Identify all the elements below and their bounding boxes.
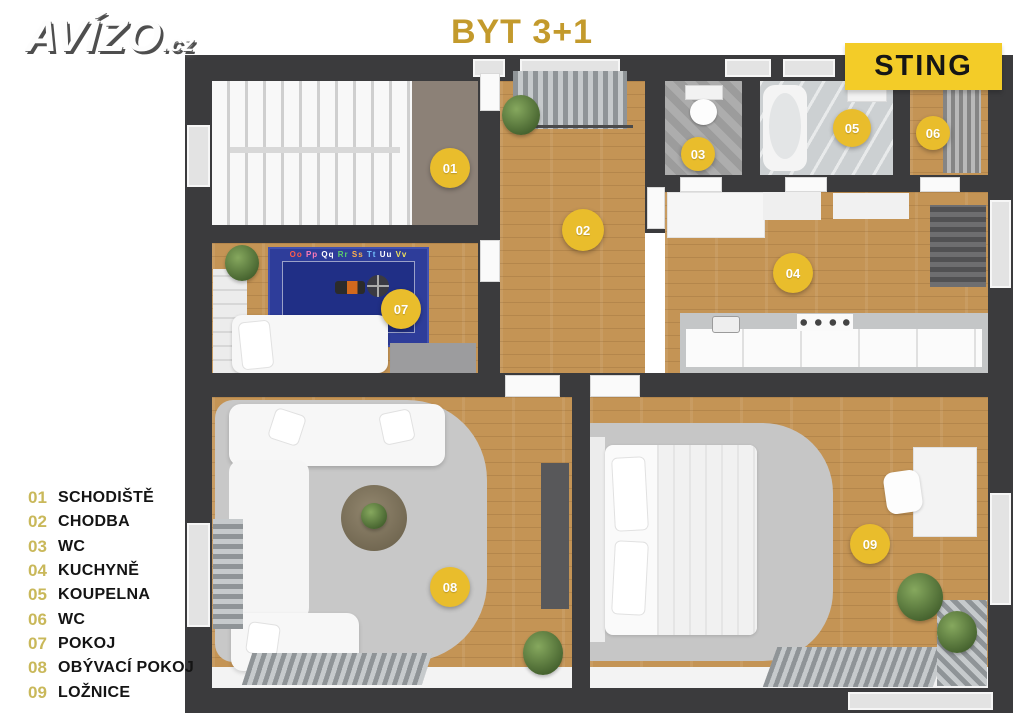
legend-item-08: 08OBÝVACÍ POKOJ <box>28 656 194 680</box>
sofa-pillow <box>245 621 281 657</box>
sting-badge: STING <box>845 43 1002 90</box>
window-top-wc <box>725 59 771 77</box>
toy-steering-wheel <box>367 275 389 297</box>
legend-number: 08 <box>28 658 58 678</box>
window-right-bedroom <box>990 493 1011 605</box>
avizo-logo-suffix: .cz <box>162 31 196 56</box>
child-bed-pillow <box>238 319 275 370</box>
kitchen-sink <box>712 316 740 333</box>
child-dresser <box>390 343 476 373</box>
legend-label: SCHODIŠTĚ <box>58 489 154 507</box>
bathtub-basin <box>769 93 801 159</box>
room-legend: 01SCHODIŠTĚ02CHODBA03WC04KUCHYNĚ05KOUPEL… <box>28 486 194 705</box>
room-marker-06: 06 <box>916 116 950 150</box>
room-marker-03: 03 <box>681 137 715 171</box>
avizo-logo[interactable]: AVÍZO.cz <box>24 12 197 62</box>
legend-label: KUCHYNĚ <box>58 562 139 580</box>
kitchen-upper-cabinet <box>763 192 821 220</box>
plant-living <box>523 631 563 675</box>
kitchen-stove <box>797 314 853 331</box>
wall-living-bedroom <box>572 373 590 688</box>
bedroom-desk <box>913 447 977 537</box>
plant-bedroom <box>897 573 943 621</box>
toy-car <box>335 281 365 294</box>
legend-label: LOŽNICE <box>58 684 130 702</box>
legend-label: KOUPELNA <box>58 586 150 604</box>
plant-child-room <box>225 245 259 281</box>
legend-label: WC <box>58 611 85 629</box>
room-marker-04: 04 <box>773 253 813 293</box>
sting-badge-label: STING <box>874 50 973 83</box>
room-marker-08: 08 <box>430 567 470 607</box>
plant-bedroom <box>937 611 977 653</box>
legend-number: 06 <box>28 610 58 630</box>
legend-number: 05 <box>28 585 58 605</box>
legend-item-01: 01SCHODIŠTĚ <box>28 486 194 510</box>
room-marker-05: 05 <box>833 109 871 147</box>
kitchen-counter-front <box>686 329 982 367</box>
legend-number: 03 <box>28 537 58 557</box>
room-marker-07: 07 <box>381 289 421 329</box>
door-wc2 <box>920 177 960 192</box>
coffee-table-plant <box>361 503 387 529</box>
legend-number: 02 <box>28 512 58 532</box>
plant-hallway <box>502 95 540 135</box>
legend-number: 04 <box>28 561 58 581</box>
kitchen-side-cabinet <box>833 193 909 219</box>
tv-sideboard <box>541 463 569 609</box>
kitchen-wardrobe <box>930 205 986 287</box>
door-child-room <box>480 240 500 282</box>
toilet-tank <box>685 85 723 100</box>
legend-item-06: 06WC <box>28 607 194 631</box>
page-title: BYT 3+1 <box>451 13 593 52</box>
room-staircase <box>212 81 412 225</box>
legend-label: CHODBA <box>58 513 130 531</box>
legend-number: 09 <box>28 683 58 703</box>
door-bedroom <box>590 375 640 397</box>
legend-item-02: 02CHODBA <box>28 510 194 534</box>
legend-item-09: 09LOŽNICE <box>28 680 194 704</box>
door-living <box>505 375 560 397</box>
sofa-pillow <box>378 408 416 446</box>
living-left-curtain <box>213 519 243 629</box>
window-top-bath <box>783 59 835 77</box>
bed-pillow <box>611 456 649 532</box>
room-marker-01: 01 <box>430 148 470 188</box>
bedroom-chair <box>882 469 923 516</box>
living-bottom-curtain <box>242 653 432 685</box>
wall-right <box>988 55 1013 713</box>
wall-stairs-child <box>212 225 478 243</box>
kitchen-fridge-cabinet <box>667 192 765 238</box>
floor-plan: Oo Pp Qq Rr Ss Tt Uu Vv <box>185 55 1015 713</box>
door-bath <box>785 177 827 192</box>
room-marker-09: 09 <box>850 524 890 564</box>
bed-pillow <box>611 540 649 616</box>
legend-number: 07 <box>28 634 58 654</box>
legend-item-03: 03WC <box>28 535 194 559</box>
alphabet-rug-letters: Oo Pp Qq Rr Ss Tt Uu Vv <box>270 250 427 260</box>
bedroom-bottom-curtain <box>763 647 948 687</box>
window-bottom-bedroom <box>848 692 993 710</box>
window-left-stairs <box>187 125 210 187</box>
door-hallway-kitchen <box>647 187 665 229</box>
avizo-logo-text: AVÍZO <box>24 12 164 61</box>
door-wc1 <box>680 177 722 192</box>
window-right-kitchen <box>990 200 1011 288</box>
legend-label: OBÝVACÍ POKOJ <box>58 659 194 677</box>
legend-item-07: 07POKOJ <box>28 632 194 656</box>
legend-item-05: 05KOUPELNA <box>28 583 194 607</box>
legend-number: 01 <box>28 488 58 508</box>
room-marker-02: 02 <box>562 209 604 251</box>
toilet-bowl <box>690 99 717 125</box>
legend-label: WC <box>58 538 85 556</box>
legend-label: POKOJ <box>58 635 116 653</box>
legend-item-04: 04KUCHYNĚ <box>28 559 194 583</box>
stairs-railing <box>230 147 400 153</box>
door-stairs-hallway <box>480 73 500 111</box>
bed-blanket <box>657 445 757 635</box>
